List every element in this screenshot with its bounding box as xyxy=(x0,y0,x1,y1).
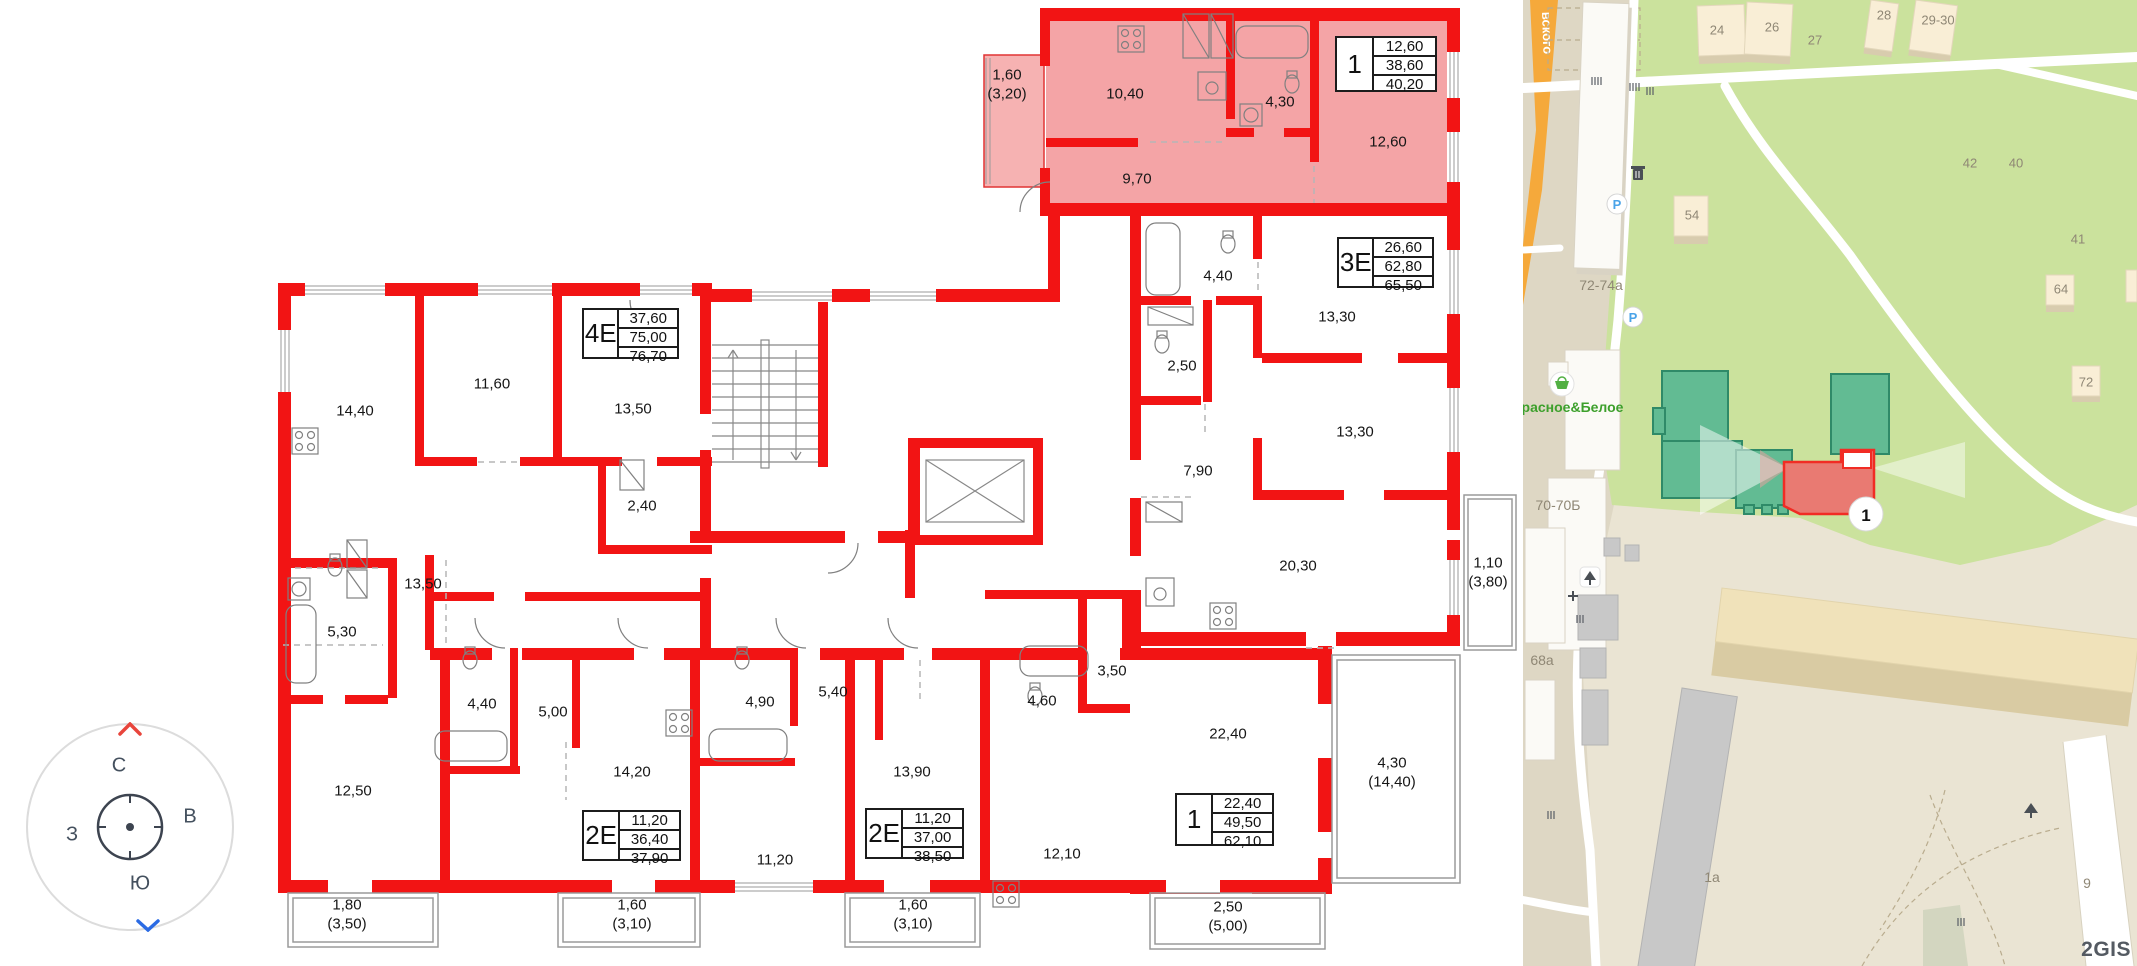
stove-icon xyxy=(292,428,318,454)
room-label: 3,50 xyxy=(1097,663,1126,682)
room-label: 13,90 xyxy=(893,764,931,783)
apartment-info-box[interactable]: 2Е 11,20 37,00 38,50 xyxy=(865,808,964,859)
washer-icon xyxy=(288,578,310,600)
bathtub-icon xyxy=(1146,223,1180,295)
map-building-number: 1а xyxy=(1704,869,1720,885)
apartment-area: 40,20 xyxy=(1374,74,1435,93)
room-label: 5,40 xyxy=(818,684,847,703)
map-building-number: 54 xyxy=(1685,208,1699,223)
apartment-area: 62,80 xyxy=(1374,256,1432,275)
apartment-area: 37,60 xyxy=(619,310,677,327)
compass-south-label: Ю xyxy=(130,873,150,896)
closet-icon xyxy=(1148,307,1193,325)
map-building-number: 72 xyxy=(2079,375,2093,390)
map-buildings-gray xyxy=(1578,538,1737,966)
map-building-number: 64 xyxy=(2054,282,2068,297)
toilet-icon xyxy=(1155,331,1169,353)
room-label: 11,60 xyxy=(474,376,510,395)
apartment-area: 26,60 xyxy=(1374,239,1432,256)
map-building-number: 40 xyxy=(2009,156,2023,171)
room-label: 10,40 xyxy=(1106,86,1144,105)
closet-icon xyxy=(347,570,367,598)
map-building-number: 24 xyxy=(1710,23,1724,38)
map-building-number: 9 xyxy=(2083,875,2091,891)
room-label: 12,50 xyxy=(334,783,372,802)
map-building-number: 42 xyxy=(1963,156,1977,171)
room-label: 20,30 xyxy=(1279,558,1317,577)
apartment-type: 2Е xyxy=(867,810,901,857)
room-label: 5,00 xyxy=(538,704,567,723)
compass-graphic xyxy=(25,722,235,932)
apartment-info-box[interactable]: 3Е 26,60 62,80 65,50 xyxy=(1337,237,1434,288)
tree-icon xyxy=(2024,803,2038,818)
apartment-type: 3Е xyxy=(1339,239,1372,286)
compass-north-arrow xyxy=(120,724,140,734)
svg-text:P: P xyxy=(1613,197,1622,212)
room-label: 4,40 xyxy=(467,696,496,715)
apartment-info-box[interactable]: 4Е 37,60 75,00 76,70 xyxy=(582,308,679,359)
room-label: 4,60 xyxy=(1027,693,1056,712)
balcony-label: 1,60 (3,10) xyxy=(612,896,651,934)
room-label: 13,50 xyxy=(614,401,652,420)
balcony-label: 1,60 (3,10) xyxy=(893,896,932,934)
map-building-tan xyxy=(1711,588,2137,727)
map-building-number: 28 xyxy=(1877,8,1891,23)
closet-icon xyxy=(620,460,644,490)
map-building-number: 29-30 xyxy=(1921,13,1954,28)
room-label: 7,90 xyxy=(1183,463,1212,482)
2gis-watermark: 2GIS xyxy=(2081,938,2131,962)
apartment-area: 65,50 xyxy=(1374,275,1432,294)
parking-icon: P xyxy=(1623,307,1643,327)
room-label: 4,90 xyxy=(745,694,774,713)
store-basket-icon[interactable] xyxy=(1550,372,1574,396)
room-label: 13,50 xyxy=(404,576,442,595)
apartment-type: 1 xyxy=(1337,38,1372,90)
tree-icon xyxy=(1580,567,1600,587)
room-label: 4,30 (14,40) xyxy=(1368,754,1416,792)
room-label: 22,40 xyxy=(1209,726,1247,745)
apartment-area: 22,40 xyxy=(1213,795,1272,812)
apartment-type: 4Е xyxy=(584,310,617,357)
room-label: 13,30 xyxy=(1336,424,1374,443)
room-label: 1,10 (3,80) xyxy=(1468,554,1507,592)
room-label: 14,40 xyxy=(336,403,374,422)
compass-north-label: С xyxy=(112,755,126,778)
room-label: 2,50 xyxy=(1167,358,1196,377)
apartment-info-box[interactable]: 1 12,60 38,60 40,20 xyxy=(1335,36,1437,92)
map-marker[interactable]: 1 xyxy=(1849,497,1883,531)
apartment-area: 38,60 xyxy=(1374,55,1435,74)
marker-number: 1 xyxy=(1861,506,1870,525)
svg-text:P: P xyxy=(1629,310,1638,325)
room-label: 12,10 xyxy=(1043,846,1081,865)
apartment-area: 62,10 xyxy=(1213,831,1272,850)
room-label: 5,30 xyxy=(327,624,356,643)
stairwell xyxy=(712,340,1024,522)
street-name-label: вского xyxy=(1539,12,1555,55)
apartment-info-box[interactable]: 1 22,40 49,50 62,10 xyxy=(1175,793,1274,846)
apartment-type: 1 xyxy=(1177,795,1211,844)
balcony-label: 2,50 (5,00) xyxy=(1208,898,1247,936)
map-building-number: 26 xyxy=(1765,20,1779,35)
store-name-label[interactable]: Красное&Белое xyxy=(1523,399,1623,415)
room-label: 4,40 xyxy=(1203,268,1232,287)
stove-icon xyxy=(666,710,692,736)
apartment-area: 12,60 xyxy=(1374,38,1435,55)
apartment-area: 37,00 xyxy=(903,827,962,846)
apartment-type: 2Е xyxy=(584,812,618,859)
map-building-number: 27 xyxy=(1808,33,1822,48)
map-graphic: вского xyxy=(1523,0,2137,966)
map-building-number: 72-74а xyxy=(1579,277,1623,293)
floor-plan-panel[interactable]: 1,60 (3,20) 10,40 4,30 12,60 9,70 14,40 … xyxy=(0,0,1523,966)
apartment-area: 75,00 xyxy=(619,327,677,346)
compass-rose[interactable]: С В З Ю xyxy=(25,722,235,932)
apartment-info-box[interactable]: 2Е 11,20 36,40 37,90 xyxy=(582,810,681,861)
room-label: 11,20 xyxy=(757,852,793,871)
apartment-area: 49,50 xyxy=(1213,812,1272,831)
map-building-number: 68а xyxy=(1530,652,1553,668)
room-label: 13,30 xyxy=(1318,309,1356,328)
parking-icon: P xyxy=(1607,194,1627,214)
room-label: 14,20 xyxy=(613,764,651,783)
room-label: 4,30 xyxy=(1265,94,1294,113)
apartment-area: 37,90 xyxy=(620,848,679,867)
stove-icon xyxy=(1210,603,1236,629)
room-label: 12,60 xyxy=(1369,134,1407,153)
map-building-number: 41 xyxy=(2071,232,2085,247)
apartment-area: 76,70 xyxy=(619,346,677,365)
apartment-area: 11,20 xyxy=(620,812,679,829)
room-label: 2,40 xyxy=(627,498,656,517)
room-label: 9,70 xyxy=(1122,171,1151,190)
apartment-area: 36,40 xyxy=(620,829,679,848)
trash-icon xyxy=(1631,166,1645,180)
toilet-icon xyxy=(1221,231,1235,253)
apartment-area: 11,20 xyxy=(903,810,962,827)
sink-icon xyxy=(1146,578,1174,606)
map-building-number: 70-70Б xyxy=(1536,497,1581,513)
floorplan-viewer: 1,60 (3,20) 10,40 4,30 12,60 9,70 14,40 … xyxy=(0,0,2137,966)
building-notch xyxy=(1843,452,1871,468)
compass-west-label: З xyxy=(66,824,78,847)
room-label: 1,60 (3,20) xyxy=(987,66,1026,104)
closet-icon xyxy=(1146,502,1182,522)
compass-east-label: В xyxy=(183,806,196,829)
balcony-label: 1,80 (3,50) xyxy=(327,896,366,934)
mini-map-panel[interactable]: вского xyxy=(1523,0,2137,966)
apartment-area: 38,50 xyxy=(903,846,962,865)
bathtub-icon xyxy=(709,729,787,761)
